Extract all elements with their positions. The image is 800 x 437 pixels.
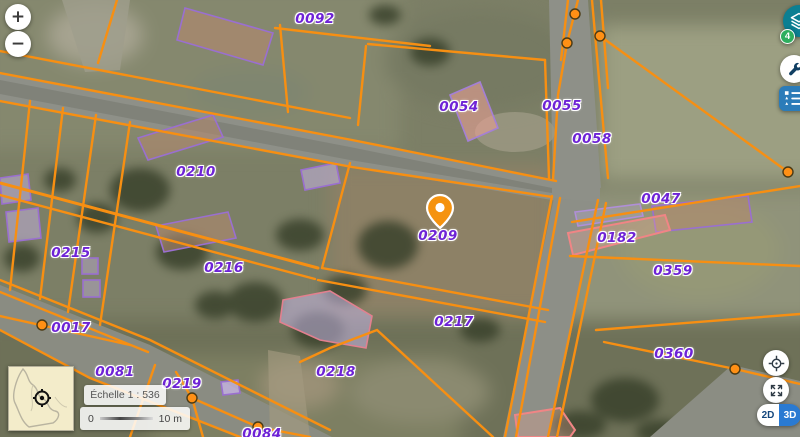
parcel-label-0216[interactable]: 0216 xyxy=(204,260,244,276)
plus-icon: + xyxy=(11,7,25,27)
geolocate-button[interactable] xyxy=(763,350,789,376)
parcel-label-0182[interactable]: 0182 xyxy=(597,230,637,246)
legend-list-icon xyxy=(784,90,800,107)
parcel-label-0092[interactable]: 0092 xyxy=(295,11,335,27)
map-stage: 0092 0054 0055 0058 0210 0047 0182 0215 … xyxy=(0,0,800,437)
scalebar-end: 10 m xyxy=(159,413,182,425)
parcel-label-0219[interactable]: 0219 xyxy=(162,376,202,392)
parcel-label-0209[interactable]: 0209 xyxy=(418,228,458,244)
parcel-label-0359[interactable]: 0359 xyxy=(653,263,693,279)
minus-icon: − xyxy=(11,34,25,54)
minimap-outline xyxy=(9,367,73,430)
overview-minimap[interactable] xyxy=(8,366,74,431)
parcel-label-0055[interactable]: 0055 xyxy=(542,98,582,114)
view-2d-button[interactable]: 2D xyxy=(757,404,779,426)
parcel-label-0058[interactable]: 0058 xyxy=(572,131,612,147)
parcel-label-0047[interactable]: 0047 xyxy=(641,191,681,207)
scalebar-panel: 0 10 m xyxy=(80,407,190,430)
view-dimension-toggle[interactable]: 2D 3D xyxy=(757,404,800,426)
parcel-label-0081[interactable]: 0081 xyxy=(95,364,135,380)
settings-wrench-button[interactable] xyxy=(780,55,800,83)
zoom-out-button[interactable]: − xyxy=(5,31,31,57)
parcel-label-0054[interactable]: 0054 xyxy=(439,99,479,115)
legend-button[interactable] xyxy=(779,86,800,111)
scale-ratio-text: Échelle 1 : 536 xyxy=(90,389,159,401)
expand-arrows-icon xyxy=(769,383,784,398)
fullscreen-button[interactable] xyxy=(763,377,789,403)
scalebar-line xyxy=(100,417,153,420)
scalebar-start: 0 xyxy=(88,413,94,425)
parcel-label-0084[interactable]: 0084 xyxy=(242,426,282,437)
parcel-label-0017[interactable]: 0017 xyxy=(51,320,91,336)
zoom-in-button[interactable]: + xyxy=(5,4,31,30)
parcel-label-0210[interactable]: 0210 xyxy=(176,164,216,180)
parcel-label-0218[interactable]: 0218 xyxy=(316,364,356,380)
view-3d-button[interactable]: 3D xyxy=(779,404,800,426)
target-icon xyxy=(768,355,785,372)
parcel-label-0217[interactable]: 0217 xyxy=(434,314,474,330)
stacked-layers-icon xyxy=(789,11,800,31)
scale-ratio-panel: Échelle 1 : 536 xyxy=(84,385,166,405)
layers-count-badge: 4 xyxy=(780,29,795,44)
parcel-label-0215[interactable]: 0215 xyxy=(51,245,91,261)
parcel-label-0360[interactable]: 0360 xyxy=(654,346,694,362)
wrench-icon xyxy=(786,61,800,78)
